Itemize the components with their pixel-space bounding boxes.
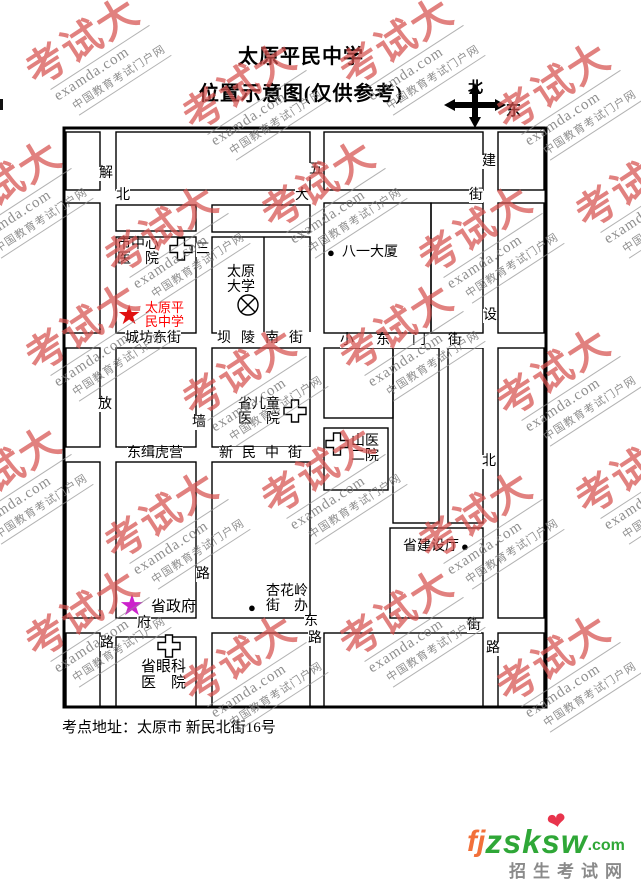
place-label-xinghualing-office: 杏花岭 街 办 [266, 584, 308, 614]
place-label-construction-dept: 省建设厅 [403, 539, 459, 554]
watermark-tile: 考试大examda.com中国教育考试门户网 [569, 399, 641, 556]
page-title: 太原平民中学 [141, 40, 461, 69]
place-label-shanyi-hospital: 山医 二院 [351, 434, 379, 464]
place-label-provincial-government: 省政府 [151, 600, 196, 615]
logo-wordmark: fj zsksw .com [467, 826, 625, 857]
street-label-chengfang-dongjie: 城坊东街 [125, 332, 181, 346]
place-label-line: 山医 [351, 434, 379, 449]
street-label-beidajie-da: 大 [295, 189, 309, 203]
place-label-line: 医 院 [141, 675, 186, 691]
place-label-line: 街 办 [266, 599, 308, 614]
wm-tagline: 中国教育考试门户网 [540, 657, 641, 733]
xinghualing-dot-icon: ● [248, 601, 256, 614]
street-label-wuyilu-2: 路 [308, 632, 322, 646]
wm-brand: 考试大 [569, 113, 641, 236]
exam-address: 考点地址：太原市 新民北街16号 [62, 716, 276, 737]
wm-tagline: 中国教育考试门户网 [619, 183, 641, 259]
government-star-icon: ★ [119, 592, 145, 621]
place-label-line: 太原 [227, 265, 255, 280]
street-label-fudongjie-dong: 东 [304, 615, 318, 629]
street-label-beidajie-jie: 街 [469, 189, 483, 203]
street-label-jiefanglu-1: 解 [99, 167, 113, 181]
place-label-line: 省眼科 [141, 659, 186, 675]
street-label-sanqianglu-1: 三 [196, 243, 210, 257]
street-label-wuyilu-1: 五 [309, 163, 323, 177]
site-logo: ❤ fj zsksw .com 招生考试网 [455, 810, 641, 886]
compass-east-label: 东 [506, 99, 521, 120]
page: 太原平民中学 位置示意图(仅供参考) 北 东 [0, 0, 641, 888]
street-label-beidajie-bei: 北 [116, 189, 130, 203]
logo-dotcom: .com [588, 835, 625, 857]
street-label-baling-nanjie: 坝陵南街 [217, 332, 313, 346]
wm-brand: 考试大 [569, 399, 641, 522]
place-label-line: 医 院 [117, 252, 159, 267]
wm-tagline: 中国教育考试门户网 [540, 85, 641, 161]
street-label-sanqianglu-3: 路 [196, 568, 210, 582]
street-label-jianshebeilu-2: 设 [483, 309, 497, 323]
place-label-line: 医 院 [238, 412, 280, 427]
logo-zsksw: zsksw [485, 826, 587, 857]
place-label-eye-hospital: 省眼科 医 院 [141, 659, 186, 691]
construction-dot-icon: ● [461, 540, 469, 553]
wm-domain: examda.com [600, 168, 641, 248]
bayi-dot-icon: ● [327, 246, 335, 259]
place-label-bayi-building: 八一大厦 [342, 245, 398, 260]
street-label-sanqianglu-2: 墙 [192, 416, 206, 430]
street-label-jiefanglu-3: 路 [100, 637, 114, 651]
street-label-fudongjie-jie: 街 [467, 619, 481, 633]
edge-artifact [0, 99, 3, 110]
place-label-line: 大学 [227, 280, 255, 295]
place-label-city-central-hospital: 市中心 医 院 [117, 237, 159, 267]
watermark-tile: 考试大examda.com中国教育考试门户网 [569, 113, 641, 270]
place-label-line: 太原平 [145, 301, 184, 315]
circle-x-symbol [238, 295, 258, 315]
street-label-xinmin-zhongjie: 新民中街 [219, 447, 311, 461]
bayi-block [324, 203, 431, 333]
street-label-jiefanglu-2: 放 [98, 398, 112, 412]
street-label-jianshebeilu-4: 路 [486, 642, 500, 656]
place-label-school: 太原平 民中学 [145, 301, 184, 329]
wm-tagline: 中国教育考试门户网 [619, 469, 641, 545]
page-subtitle: 位置示意图(仅供参考) [141, 77, 461, 106]
logo-fj: fj [467, 827, 485, 857]
wm-tagline: 中国教育考试门户网 [540, 371, 641, 447]
place-label-line: 市中心 [117, 237, 159, 252]
place-label-taiyuan-university: 太原 大学 [227, 265, 255, 295]
place-label-line: 省儿童 [238, 397, 280, 412]
street-label-dongjihuying: 东缉虎营 [127, 447, 183, 461]
wm-domain: examda.com [600, 454, 641, 534]
street-label-jianshebeilu-3: 北 [482, 455, 496, 469]
place-label-line: 民中学 [145, 315, 184, 329]
street-label-jianshebeilu-1: 建 [482, 155, 496, 169]
logo-tagline: 招生考试网 [509, 857, 629, 882]
place-label-line: 二院 [351, 449, 379, 464]
place-label-children-hospital: 省儿童 医 院 [238, 397, 280, 427]
street-label-xiaodongmen-jie: 小东门街 [340, 334, 484, 348]
school-star-icon: ★ [117, 302, 141, 329]
compass-north-label: 北 [468, 76, 483, 97]
place-label-line: 杏花岭 [266, 584, 308, 599]
